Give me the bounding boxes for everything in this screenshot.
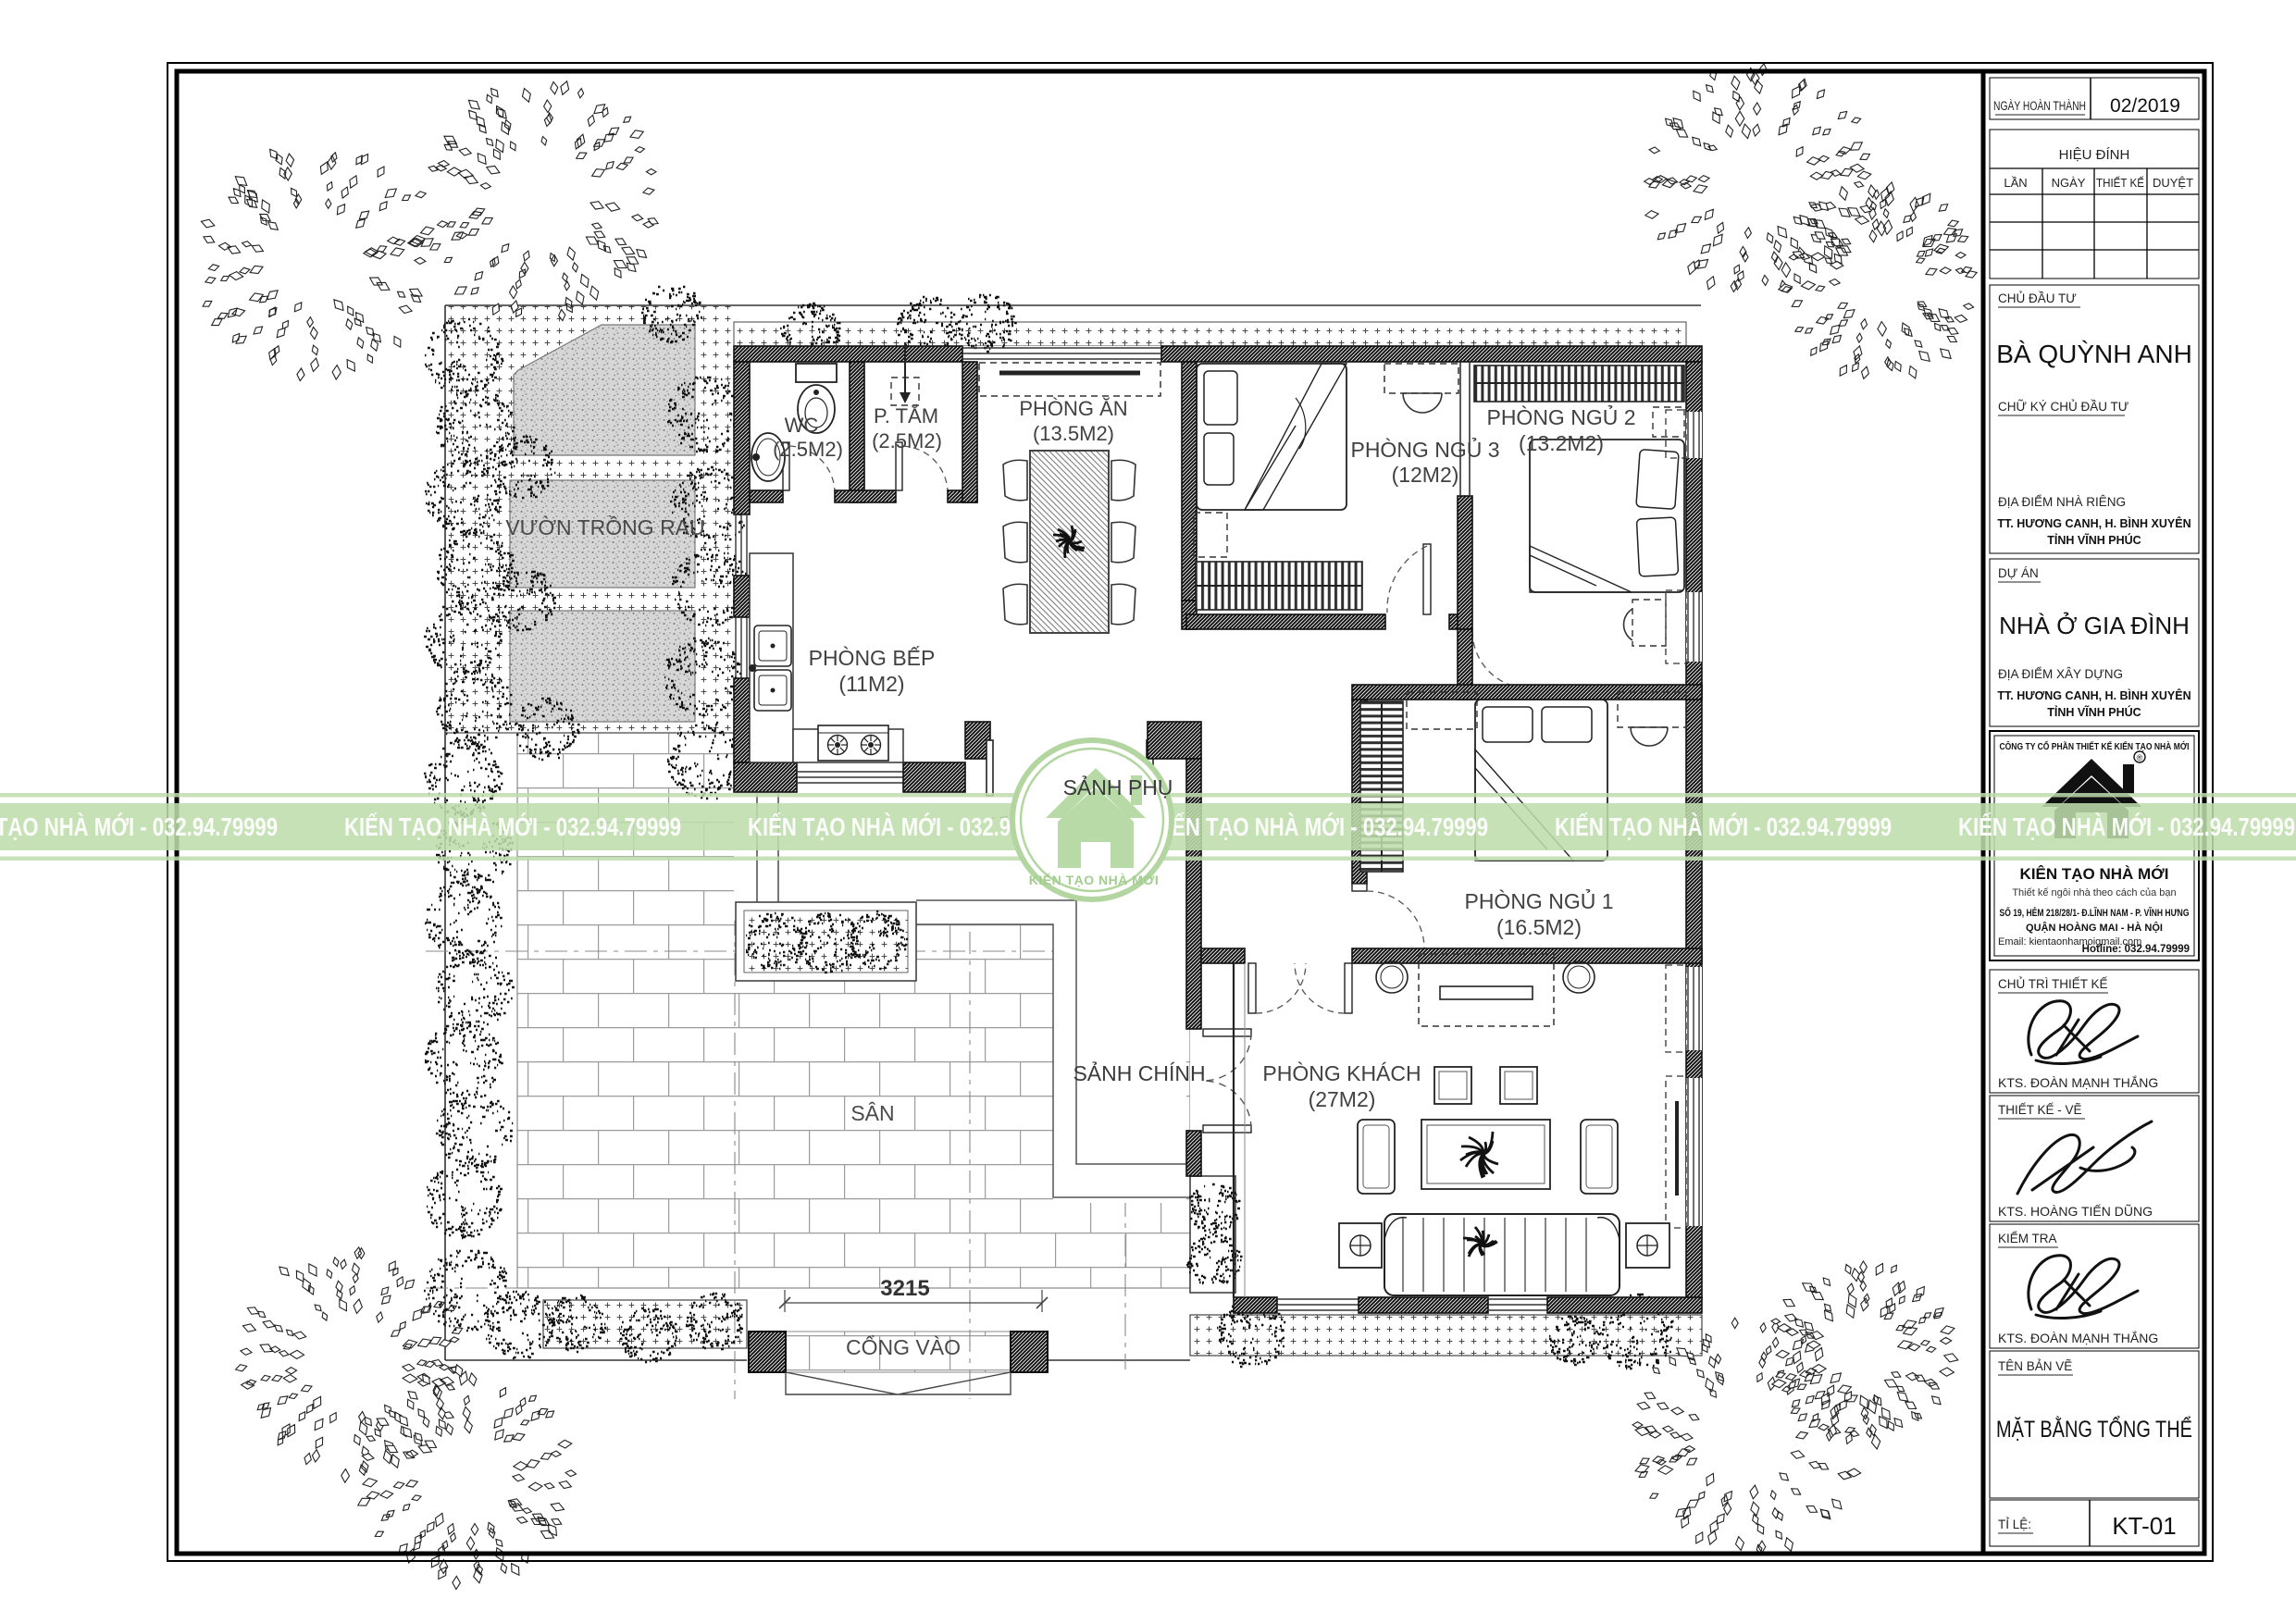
svg-text:SẢNH CHÍNH: SẢNH CHÍNH — [1073, 1059, 1205, 1085]
svg-text:CÔNG TY CỔ PHẦN THIẾT KẾ KIẾN: CÔNG TY CỔ PHẦN THIẾT KẾ KIẾN TẠO NHÀ MỚ… — [2000, 740, 2190, 752]
svg-text:KTS. ĐOÀN MẠNH THẮNG: KTS. ĐOÀN MẠNH THẮNG — [1998, 1330, 2158, 1345]
svg-text:KIẾN TẠO NHÀ MỚI: KIẾN TẠO NHÀ MỚI — [1029, 872, 1160, 887]
svg-text:(16.5M2): (16.5M2) — [1496, 915, 1582, 939]
svg-text:PHÒNG KHÁCH: PHÒNG KHÁCH — [1262, 1061, 1421, 1085]
svg-text:CHỦ TRÌ THIẾT KẾ: CHỦ TRÌ THIẾT KẾ — [1998, 977, 2108, 991]
svg-text:KIÊN TẠO NHÀ MỚI: KIÊN TẠO NHÀ MỚI — [2020, 865, 2169, 883]
svg-text:TỈNH VĨNH PHÚC: TỈNH VĨNH PHÚC — [2047, 705, 2141, 719]
svg-text:MẶT BẰNG TỔNG THỂ: MẶT BẰNG TỔNG THỂ — [1996, 1415, 2192, 1443]
svg-text:TỈ LỆ:: TỈ LỆ: — [1998, 1518, 2031, 1531]
svg-text:CỔNG VÀO: CỔNG VÀO — [846, 1334, 961, 1359]
svg-text:KIẾN TẠO NHÀ MỚI - 032.94.7999: KIẾN TẠO NHÀ MỚI - 032.94.79999 — [1555, 812, 1892, 841]
svg-text:Hotline: 032.94.79999: Hotline: 032.94.79999 — [2082, 944, 2190, 955]
svg-text:(12M2): (12M2) — [1392, 463, 1459, 487]
svg-text:VƯỜN TRỒNG RAU: VƯỜN TRỒNG RAU — [505, 514, 704, 539]
svg-text:CHỮ KÝ CHỦ ĐẦU TƯ: CHỮ KÝ CHỦ ĐẦU TƯ — [1998, 400, 2128, 414]
svg-text:TT. HƯƠNG CANH, H. BÌNH XUYÊN: TT. HƯƠNG CANH, H. BÌNH XUYÊN — [1997, 688, 2191, 702]
svg-text:KIẾN TẠO NHÀ MỚI - 032.94.7999: KIẾN TẠO NHÀ MỚI - 032.94.79999 — [0, 812, 278, 841]
svg-text:Thiết kế ngôi nhà theo cách củ: Thiết kế ngôi nhà theo cách của bạn — [2012, 887, 2176, 898]
svg-text:NHÀ Ở GIA ĐÌNH: NHÀ Ở GIA ĐÌNH — [1999, 611, 2190, 639]
svg-text:KIỂM TRA: KIỂM TRA — [1998, 1232, 2057, 1245]
svg-text:PHÒNG NGỦ 3: PHÒNG NGỦ 3 — [1350, 436, 1499, 462]
svg-text:®: ® — [2137, 753, 2143, 762]
svg-text:KIẾN TẠO NHÀ MỚI - 032.94.7999: KIẾN TẠO NHÀ MỚI - 032.94.79999 — [1151, 812, 1488, 841]
svg-text:PHÒNG NGỦ 1: PHÒNG NGỦ 1 — [1464, 887, 1613, 913]
svg-text:WC: WC — [785, 414, 819, 437]
svg-text:P. TẮM: P. TẮM — [874, 404, 938, 427]
svg-text:PHÒNG NGỦ 2: PHÒNG NGỦ 2 — [1486, 403, 1635, 429]
svg-text:(11M2): (11M2) — [838, 672, 904, 696]
svg-text:PHÒNG ĂN: PHÒNG ĂN — [1019, 397, 1127, 420]
svg-text:(2.5M2): (2.5M2) — [872, 429, 942, 452]
svg-text:ĐỊA ĐIỂM NHÀ RIÊNG: ĐỊA ĐIỂM NHÀ RIÊNG — [1998, 495, 2126, 509]
svg-text:QUẬN HOÀNG MAI - HÀ NỘI: QUẬN HOÀNG MAI - HÀ NỘI — [2026, 922, 2163, 934]
svg-text:02/2019: 02/2019 — [2110, 95, 2180, 117]
svg-text:THIẾT KẾ: THIẾT KẾ — [2096, 176, 2144, 190]
svg-text:TỈNH VĨNH PHÚC: TỈNH VĨNH PHÚC — [2047, 533, 2141, 547]
svg-text:BÀ QUỲNH ANH: BÀ QUỲNH ANH — [1996, 340, 2192, 368]
svg-text:TT. HƯƠNG CANH, H. BÌNH XUYÊN: TT. HƯƠNG CANH, H. BÌNH XUYÊN — [1997, 516, 2191, 530]
svg-text:KIẾN TẠO NHÀ MỚI - 032.94.7999: KIẾN TẠO NHÀ MỚI - 032.94.79999 — [1958, 812, 2295, 841]
svg-text:SỐ 19, HẺM 218/28/1- Đ.LĨNH NA: SỐ 19, HẺM 218/28/1- Đ.LĨNH NAM - P. VĨN… — [2000, 906, 2190, 919]
svg-text:KTS. ĐOÀN MẠNH THẮNG: KTS. ĐOÀN MẠNH THẮNG — [1998, 1074, 2158, 1090]
svg-text:PHÒNG BẾP: PHÒNG BẾP — [809, 645, 936, 670]
svg-text:TÊN BẢN VẼ: TÊN BẢN VẼ — [1998, 1359, 2072, 1373]
svg-text:SẢNH PHỤ: SẢNH PHỤ — [1063, 774, 1173, 799]
svg-text:DUYỆT: DUYỆT — [2153, 176, 2193, 190]
svg-text:CHỦ ĐẦU TƯ: CHỦ ĐẦU TƯ — [1998, 291, 2077, 305]
svg-text:KIẾN TẠO NHÀ MỚI - 032.94.7999: KIẾN TẠO NHÀ MỚI - 032.94.79999 — [344, 812, 681, 841]
svg-text:SÂN: SÂN — [850, 1101, 894, 1125]
svg-text:KTS. HOÀNG TIẾN DŨNG: KTS. HOÀNG TIẾN DŨNG — [1998, 1204, 2153, 1219]
svg-text:HIỆU ĐÍNH: HIỆU ĐÍNH — [2059, 147, 2130, 163]
svg-text:ĐỊA ĐIỂM XÂY DỰNG: ĐỊA ĐIỂM XÂY DỰNG — [1998, 667, 2123, 681]
svg-text:NGÀY: NGÀY — [2052, 176, 2086, 190]
svg-text:NGÀY HOÀN THÀNH: NGÀY HOÀN THÀNH — [1993, 99, 2086, 113]
svg-text:(27M2): (27M2) — [1309, 1087, 1376, 1111]
svg-text:LẦN: LẦN — [2004, 176, 2027, 190]
svg-text:THIẾT KẾ - VẼ: THIẾT KẾ - VẼ — [1998, 1103, 2082, 1117]
svg-text:(13.2M2): (13.2M2) — [1519, 431, 1604, 455]
svg-text:(2.5M2): (2.5M2) — [773, 438, 843, 461]
svg-text:3215: 3215 — [880, 1276, 929, 1301]
svg-text:DỰ ÁN: DỰ ÁN — [1998, 566, 2039, 580]
svg-text:(13.5M2): (13.5M2) — [1033, 422, 1114, 445]
svg-text:KT-01: KT-01 — [2112, 1512, 2176, 1540]
